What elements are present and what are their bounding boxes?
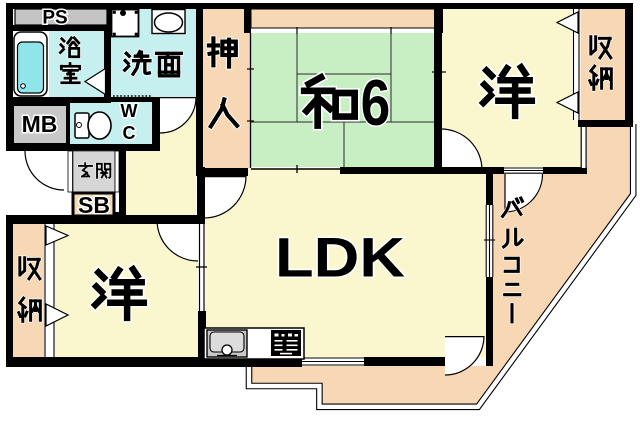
- svg-text:PS: PS: [42, 7, 67, 28]
- svg-text:W: W: [121, 101, 138, 121]
- svg-text:6: 6: [361, 66, 391, 139]
- svg-text:LDK: LDK: [275, 226, 405, 289]
- svg-text:C: C: [123, 123, 136, 143]
- svg-text:MB: MB: [22, 111, 58, 137]
- svg-text:SB: SB: [78, 192, 110, 218]
